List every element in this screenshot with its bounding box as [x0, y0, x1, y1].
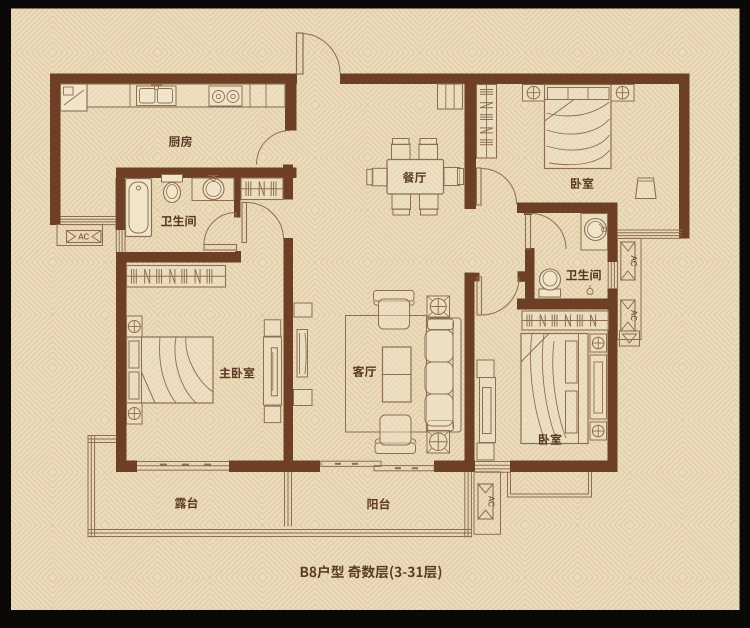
svg-text:AC: AC [629, 255, 638, 266]
svg-text:AC: AC [629, 310, 638, 321]
svg-text:AC: AC [78, 233, 89, 242]
svg-text:AC: AC [487, 496, 496, 507]
